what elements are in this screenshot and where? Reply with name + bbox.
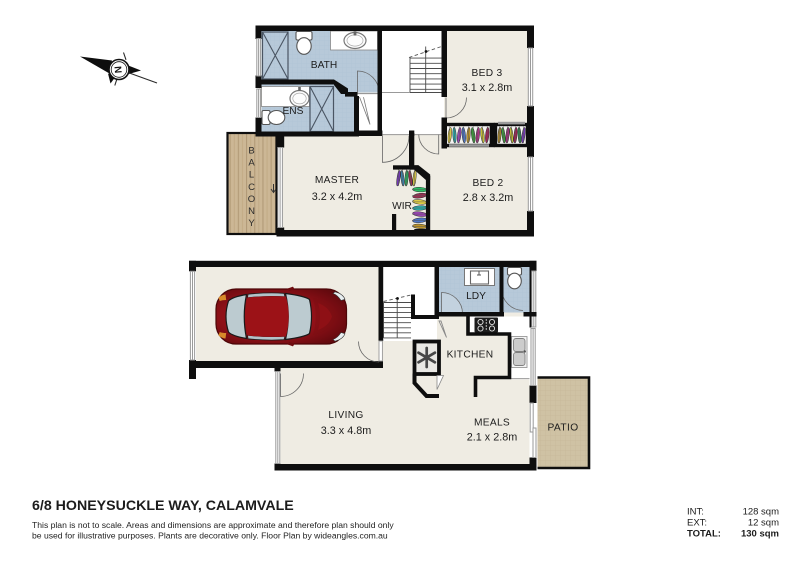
svg-text:BED 3: BED 3: [472, 68, 503, 79]
svg-text:B: B: [248, 146, 254, 157]
svg-text:PATIO: PATIO: [547, 423, 578, 434]
svg-text:3.3 x 4.8m: 3.3 x 4.8m: [321, 425, 371, 437]
svg-text:WIR: WIR: [392, 201, 412, 212]
svg-text:INT:: INT:: [687, 507, 704, 518]
svg-text:N: N: [113, 65, 125, 73]
svg-text:EXT:: EXT:: [687, 518, 707, 529]
svg-text:128 sqm: 128 sqm: [743, 507, 780, 518]
svg-text:LDY: LDY: [466, 291, 486, 302]
svg-text:C: C: [248, 182, 255, 193]
svg-text:O: O: [248, 194, 255, 205]
svg-text:This plan is not to scale. Are: This plan is not to scale. Areas and dim…: [32, 520, 394, 530]
svg-text:L: L: [249, 170, 254, 181]
svg-text:2.1 x 2.8m: 2.1 x 2.8m: [467, 432, 517, 444]
svg-text:LIVING: LIVING: [328, 410, 363, 421]
svg-text:Y: Y: [248, 218, 255, 229]
svg-text:130 sqm: 130 sqm: [741, 529, 779, 540]
svg-text:N: N: [248, 206, 255, 217]
svg-text:KITCHEN: KITCHEN: [447, 350, 494, 361]
svg-text:12 sqm: 12 sqm: [748, 518, 779, 529]
svg-text:ENS: ENS: [283, 106, 304, 117]
svg-text:be used for illustrative purpo: be used for illustrative purposes. Plant…: [32, 531, 388, 541]
svg-text:MEALS: MEALS: [474, 418, 510, 429]
svg-text:BED 2: BED 2: [473, 178, 504, 189]
svg-text:3.1 x 2.8m: 3.1 x 2.8m: [462, 82, 512, 94]
svg-text:TOTAL:: TOTAL:: [687, 529, 721, 540]
svg-text:3.2 x 4.2m: 3.2 x 4.2m: [312, 191, 362, 203]
svg-text:BATH: BATH: [311, 60, 337, 71]
svg-text:6/8 HONEYSUCKLE WAY, CALAMVALE: 6/8 HONEYSUCKLE WAY, CALAMVALE: [32, 498, 294, 514]
svg-text:2.8 x 3.2m: 2.8 x 3.2m: [463, 192, 513, 204]
svg-text:A: A: [248, 158, 255, 169]
svg-text:MASTER: MASTER: [315, 175, 359, 186]
